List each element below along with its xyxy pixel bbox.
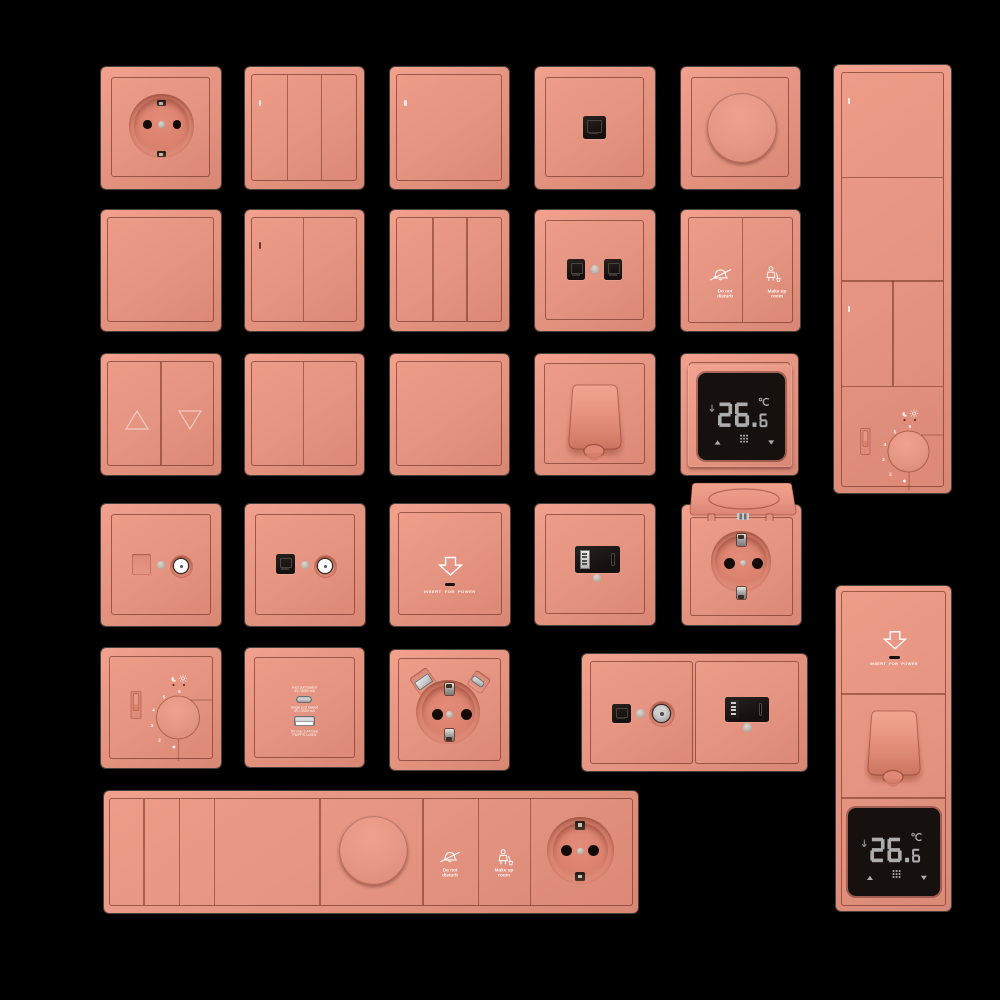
svg-text:2: 2 [158, 738, 161, 744]
svg-text:3: 3 [151, 723, 154, 729]
svg-text:3: 3 [882, 457, 885, 463]
svg-text:5: 5 [894, 430, 897, 436]
svg-text:✱: ✱ [903, 479, 907, 484]
svg-text:4: 4 [152, 708, 155, 714]
svg-text:6: 6 [909, 424, 912, 430]
svg-text:5: 5 [163, 695, 166, 701]
svg-text:6: 6 [178, 689, 181, 695]
svg-text:✱: ✱ [172, 745, 176, 750]
svg-text:4: 4 [884, 442, 887, 448]
svg-text:2: 2 [889, 472, 892, 478]
